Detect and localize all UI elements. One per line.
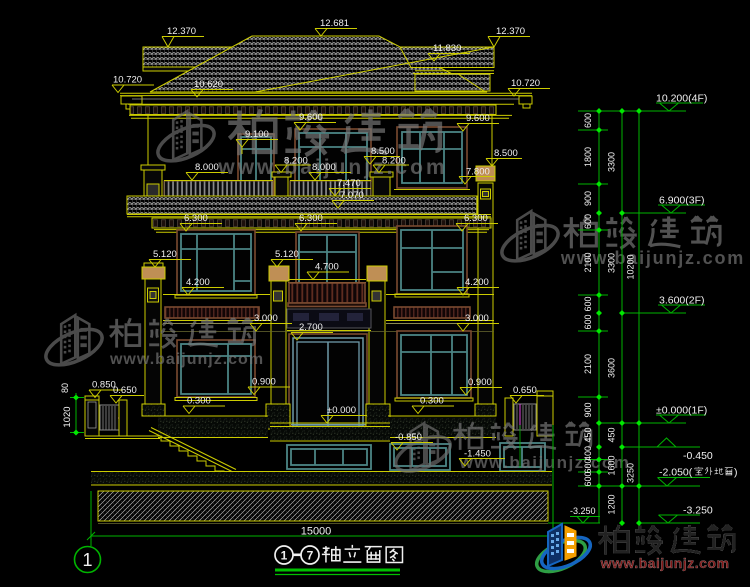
svg-text:7: 7: [307, 549, 314, 563]
svg-text:3300: 3300: [607, 152, 617, 172]
svg-text:±0.000: ±0.000: [327, 405, 356, 416]
svg-text:600: 600: [583, 113, 593, 128]
svg-text:600: 600: [583, 296, 593, 311]
svg-text:4.200: 4.200: [186, 277, 210, 288]
svg-text:-2.050(: -2.050(: [659, 467, 693, 479]
svg-text:8.000: 8.000: [312, 162, 336, 173]
svg-text:7.800: 7.800: [466, 167, 490, 178]
svg-text:3.000: 3.000: [254, 313, 278, 324]
svg-text:0.650: 0.650: [513, 385, 537, 396]
svg-text:0.300: 0.300: [187, 396, 211, 407]
svg-text:12.681: 12.681: [320, 18, 349, 29]
svg-text:0.900: 0.900: [468, 377, 492, 388]
svg-text:-0.450: -0.450: [683, 450, 713, 462]
svg-text:www.baijunjz.com: www.baijunjz.com: [109, 351, 264, 368]
svg-text:11.830: 11.830: [433, 43, 461, 54]
svg-text:3.000: 3.000: [465, 313, 489, 324]
svg-text:10.720: 10.720: [511, 78, 540, 89]
svg-text:6.900(3F): 6.900(3F): [659, 195, 705, 207]
svg-text:-1.450: -1.450: [464, 449, 491, 460]
svg-text:8.200: 8.200: [284, 156, 308, 167]
svg-text:2100: 2100: [583, 252, 593, 272]
svg-text:0.650: 0.650: [113, 385, 137, 396]
svg-text:450: 450: [583, 427, 593, 442]
svg-text:3.600(2F): 3.600(2F): [659, 295, 705, 307]
svg-text:9.100: 9.100: [245, 129, 269, 140]
svg-text:0.300: 0.300: [420, 396, 444, 407]
svg-text:1200: 1200: [607, 494, 617, 514]
svg-text:9.600: 9.600: [466, 113, 490, 124]
svg-text:-3.250: -3.250: [570, 506, 596, 516]
svg-text:4.200: 4.200: [465, 277, 489, 288]
svg-text:10.620: 10.620: [194, 79, 223, 90]
svg-text:7.470: 7.470: [337, 178, 361, 189]
svg-text:12.370: 12.370: [167, 26, 196, 37]
svg-text:1800: 1800: [583, 147, 593, 167]
svg-text:5.120: 5.120: [275, 249, 299, 260]
svg-text:www.baijunjz.com: www.baijunjz.com: [600, 555, 730, 571]
svg-text:8.200: 8.200: [382, 156, 406, 167]
svg-text:600: 600: [583, 458, 593, 473]
svg-text:3250: 3250: [626, 463, 636, 483]
svg-text:6.300: 6.300: [184, 213, 208, 224]
svg-text:10.200(4F): 10.200(4F): [656, 93, 707, 105]
svg-text:6.300: 6.300: [464, 213, 488, 224]
svg-text:600: 600: [583, 314, 593, 329]
svg-text:450: 450: [607, 427, 617, 442]
svg-text:-3.250: -3.250: [683, 505, 713, 517]
svg-text:4.700: 4.700: [315, 262, 339, 273]
svg-text:15000: 15000: [301, 526, 332, 538]
svg-text:8.000: 8.000: [195, 162, 219, 173]
svg-text:10.720: 10.720: [113, 75, 142, 86]
svg-text:1: 1: [82, 550, 92, 570]
svg-text:10200: 10200: [626, 254, 636, 279]
svg-text:-0.850: -0.850: [395, 432, 422, 443]
svg-text:3300: 3300: [607, 253, 617, 273]
svg-text:80: 80: [60, 383, 70, 393]
svg-text:): ): [734, 467, 738, 479]
svg-text:900: 900: [583, 402, 593, 417]
svg-text:2.700: 2.700: [299, 322, 323, 333]
svg-text:1020: 1020: [62, 406, 73, 427]
svg-text:600: 600: [583, 214, 593, 229]
svg-text:±0.000(1F): ±0.000(1F): [656, 405, 707, 417]
svg-text:8.500: 8.500: [494, 148, 518, 159]
svg-text:5.120: 5.120: [153, 249, 177, 260]
svg-text:600: 600: [583, 471, 593, 486]
svg-text:1: 1: [281, 549, 288, 563]
svg-text:2100: 2100: [583, 354, 593, 374]
svg-text:7.070: 7.070: [340, 190, 364, 201]
svg-text:6.300: 6.300: [299, 213, 323, 224]
svg-text:12.370: 12.370: [496, 26, 525, 37]
svg-text:0.900: 0.900: [252, 377, 276, 388]
svg-text:1600: 1600: [607, 455, 617, 475]
svg-text:900: 900: [583, 191, 593, 206]
svg-text:9.600: 9.600: [299, 112, 323, 123]
svg-text:3600: 3600: [607, 358, 617, 378]
